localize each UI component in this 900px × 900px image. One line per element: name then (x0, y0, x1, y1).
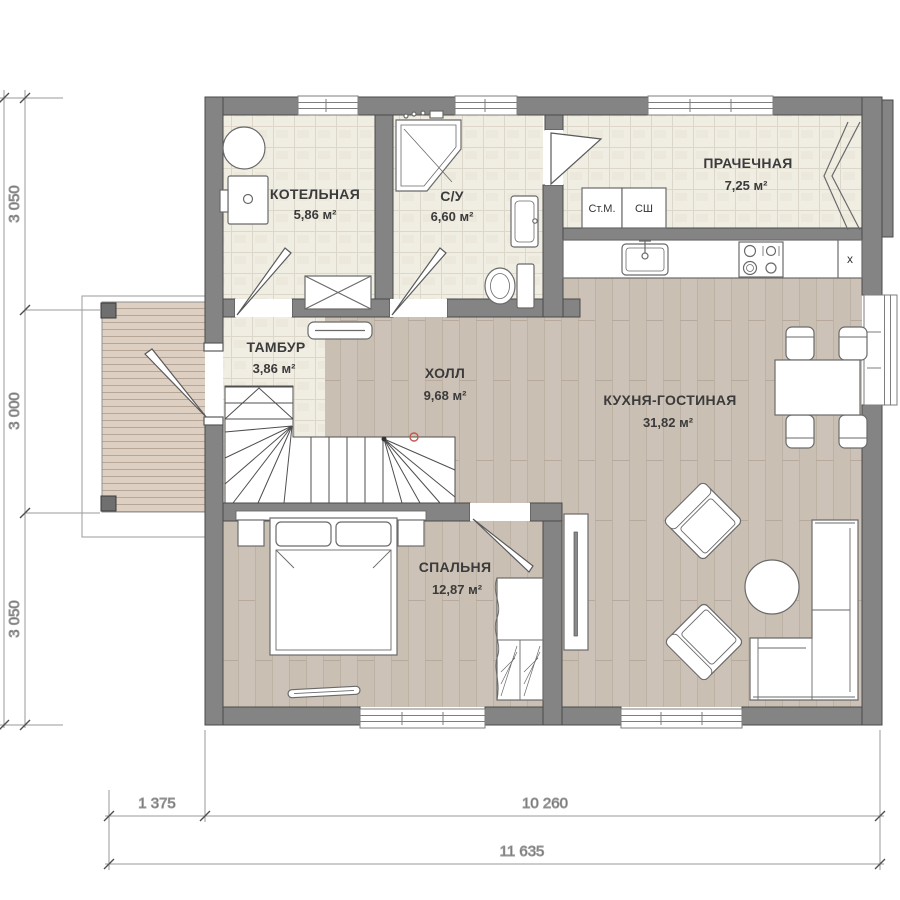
wall-right-lower (862, 405, 882, 725)
nightstand-left (238, 520, 264, 546)
room-area-bedroom: 12,87 м² (432, 582, 483, 597)
deck-post-top (101, 303, 116, 318)
wall-right-upper (862, 97, 882, 295)
wall-left-upper (205, 97, 223, 350)
tv-icon (574, 532, 578, 636)
room-area-tambour: 3,86 м² (253, 361, 297, 376)
dining-chair-1 (786, 327, 814, 360)
dim-bottom-1: 1 375 (138, 795, 176, 812)
wall-bedroom-top-2 (530, 503, 562, 521)
room-label-laundry: ПРАЧЕЧНАЯ (703, 155, 792, 171)
wardrobe (495, 578, 543, 700)
floor-hatch-icon (305, 276, 371, 309)
dim-left-2: 3 000 (6, 392, 23, 430)
floor-plan: КОТЕЛЬНАЯ 5,86 м² С/У 6,60 м² ПРАЧЕЧНАЯ … (0, 0, 900, 900)
water-tank-icon (223, 127, 265, 169)
wall-bottom-1 (205, 707, 360, 725)
room-area-kitchen: 31,82 м² (643, 415, 694, 430)
wall-laundry-stub (545, 115, 563, 130)
stove-icon (739, 242, 783, 277)
blanket (276, 550, 391, 650)
dining-chair-3 (786, 415, 814, 448)
pillow-right (336, 522, 391, 546)
dim-bottom-2: 10 260 (522, 795, 568, 812)
window-top-boiler (298, 96, 358, 115)
stair-newel-dot (382, 437, 387, 442)
kitchen-sink-icon (622, 240, 668, 275)
fridge-label: x (847, 252, 853, 266)
deck-post-bottom (101, 496, 116, 511)
wall-boiler-wc (375, 115, 393, 317)
wall-top-3 (517, 97, 648, 115)
room-label-tambour: ТАМБУР (246, 339, 305, 355)
dim-left-1: 3 050 (6, 185, 23, 223)
dim-chain-bottom: 1 375 10 260 11 635 (104, 730, 885, 870)
dim-bottom-total: 11 635 (500, 843, 545, 860)
room-area-wc: 6,60 м² (431, 209, 475, 224)
kitchen-counter (563, 240, 862, 278)
dryer-label: СШ (635, 203, 653, 215)
wall-laundry-kitchen (563, 228, 862, 240)
radiator-tambour (308, 322, 372, 339)
room-label-hall: ХОЛЛ (425, 365, 465, 381)
wall-left-lower (205, 418, 223, 725)
dim-ticks-bottom (104, 811, 885, 869)
room-label-kitchen: КУХНЯ-ГОСТИНАЯ (603, 392, 736, 408)
wall-bedroom-living (543, 521, 562, 725)
dining-chair-2 (839, 327, 867, 360)
room-label-boiler: КОТЕЛЬНАЯ (270, 186, 360, 202)
window-bottom-bedroom (360, 709, 485, 728)
pillow-left (276, 522, 331, 546)
dim-left-3: 3 050 (6, 600, 23, 638)
floor-plan-page: КОТЕЛЬНАЯ 5,86 м² С/У 6,60 м² ПРАЧЕЧНАЯ … (0, 0, 900, 900)
washer-label: Ст.М. (588, 203, 615, 215)
window-right-living (864, 295, 897, 405)
window-top-wc (455, 96, 517, 115)
wc-sink-icon (511, 196, 538, 247)
room-label-bedroom: СПАЛЬНЯ (419, 559, 492, 575)
wall-under-boiler-1 (223, 299, 235, 317)
wall-right-pier (882, 100, 893, 237)
coffee-table (745, 560, 799, 614)
dining-table (775, 360, 860, 415)
wall-wc-kitchen (543, 185, 563, 317)
tv-unit (564, 514, 588, 650)
dining-chair-4 (839, 415, 867, 448)
window-bottom-living (621, 709, 742, 728)
window-top-laundry (648, 96, 773, 115)
room-area-laundry: 7,25 м² (725, 178, 769, 193)
wall-bottom-3 (742, 707, 880, 725)
room-area-hall: 9,68 м² (424, 388, 468, 403)
nightstand-right (398, 520, 424, 546)
room-area-boiler: 5,86 м² (294, 207, 338, 222)
room-label-wc: С/У (440, 188, 464, 204)
